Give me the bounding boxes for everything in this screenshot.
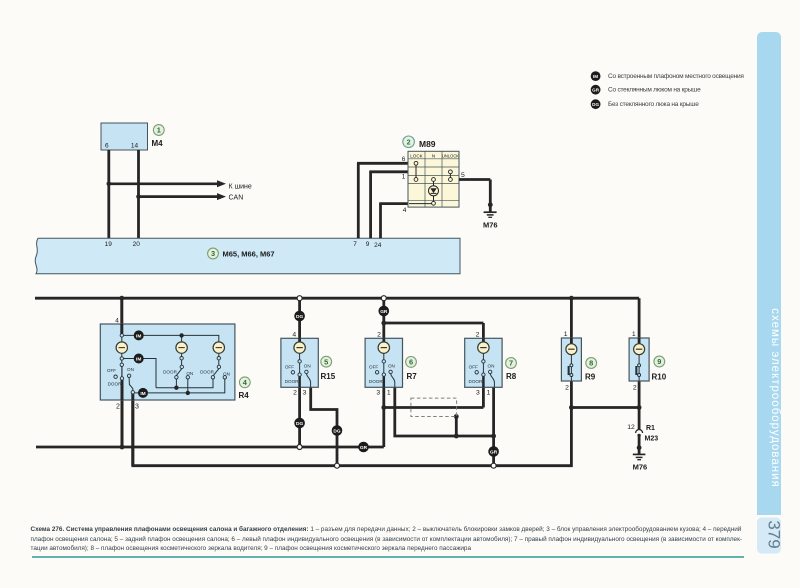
svg-text:N: N (432, 153, 435, 158)
svg-text:R8: R8 (506, 372, 517, 381)
svg-text:14: 14 (131, 142, 139, 149)
svg-text:3: 3 (211, 249, 215, 258)
svg-text:GR: GR (360, 445, 368, 451)
svg-text:1: 1 (487, 390, 491, 397)
svg-text:CAN: CAN (229, 195, 244, 202)
svg-text:1: 1 (632, 331, 636, 338)
svg-text:9: 9 (366, 241, 370, 248)
svg-text:IM: IM (593, 74, 598, 79)
svg-text:IM: IM (136, 333, 141, 339)
svg-text:2: 2 (293, 390, 297, 397)
svg-text:ON: ON (186, 371, 193, 376)
svg-text:1: 1 (402, 174, 406, 181)
svg-text:6: 6 (105, 142, 109, 149)
svg-text:5: 5 (324, 357, 328, 366)
svg-text:12: 12 (627, 424, 635, 431)
svg-text:DOOR: DOOR (200, 370, 214, 375)
svg-text:R7: R7 (407, 372, 418, 381)
svg-text:24: 24 (374, 242, 382, 249)
svg-text:19: 19 (105, 241, 113, 248)
svg-text:UNLOCK: UNLOCK (442, 153, 459, 158)
svg-text:M76: M76 (483, 221, 498, 230)
svg-text:379: 379 (765, 520, 784, 548)
svg-text:ON: ON (127, 367, 134, 372)
svg-text:1: 1 (564, 331, 568, 338)
svg-text:R10: R10 (652, 373, 667, 382)
svg-text:R15: R15 (321, 372, 336, 381)
svg-text:ON: ON (223, 372, 230, 377)
svg-text:Со встроенным плафоном местног: Со встроенным плафоном местного освещени… (608, 73, 744, 80)
svg-text:2: 2 (476, 332, 480, 339)
svg-text:8: 8 (589, 359, 593, 368)
svg-text:GR: GR (380, 309, 388, 315)
svg-text:Со стеклянным люком на крыше: Со стеклянным люком на крыше (608, 87, 701, 94)
svg-text:GR: GR (490, 450, 498, 456)
svg-text:DG: DG (296, 421, 303, 427)
svg-text:GR: GR (592, 88, 600, 93)
svg-text:6: 6 (402, 156, 406, 163)
svg-text:6: 6 (409, 358, 413, 367)
svg-text:3: 3 (303, 390, 307, 397)
svg-text:R4: R4 (239, 391, 250, 400)
svg-text:LOCK: LOCK (410, 153, 423, 158)
svg-text:R1: R1 (646, 425, 655, 432)
svg-text:2: 2 (407, 138, 411, 147)
svg-text:M65, M66, M67: M65, M66, M67 (223, 250, 275, 259)
svg-text:2: 2 (377, 332, 381, 339)
svg-text:9: 9 (657, 357, 661, 366)
svg-text:1: 1 (157, 126, 161, 135)
svg-text:R9: R9 (585, 373, 596, 382)
svg-text:DOOR: DOOR (108, 382, 122, 387)
svg-text:4: 4 (292, 332, 296, 339)
svg-text:4: 4 (403, 207, 407, 214)
svg-text:5: 5 (461, 172, 465, 179)
svg-text:3: 3 (135, 404, 139, 411)
svg-text:M23: M23 (645, 435, 659, 442)
svg-text:DG: DG (592, 102, 599, 107)
svg-text:7: 7 (509, 359, 513, 368)
svg-text:3: 3 (376, 390, 380, 397)
svg-text:К шине: К шине (229, 183, 252, 190)
svg-text:3: 3 (476, 390, 480, 397)
svg-text:DG: DG (296, 314, 303, 320)
svg-text:2: 2 (633, 384, 637, 391)
svg-text:DG: DG (333, 429, 340, 435)
svg-text:1: 1 (387, 390, 391, 397)
svg-text:M89: M89 (419, 139, 436, 149)
svg-text:2: 2 (116, 404, 120, 411)
svg-text:Без стеклянного люка на крыше: Без стеклянного люка на крыше (608, 101, 699, 108)
svg-text:M76: M76 (633, 463, 648, 472)
svg-text:2: 2 (565, 384, 569, 391)
svg-text:DOOR: DOOR (163, 370, 177, 375)
svg-text:7: 7 (353, 241, 357, 248)
svg-text:M4: M4 (152, 139, 164, 148)
svg-text:IM: IM (140, 391, 145, 397)
svg-text:схемы электрооборудования: схемы электрооборудования (769, 308, 781, 488)
svg-text:20: 20 (133, 241, 141, 248)
svg-text:4: 4 (115, 317, 119, 324)
svg-text:OFF: OFF (107, 368, 116, 373)
svg-text:IM: IM (136, 356, 141, 362)
